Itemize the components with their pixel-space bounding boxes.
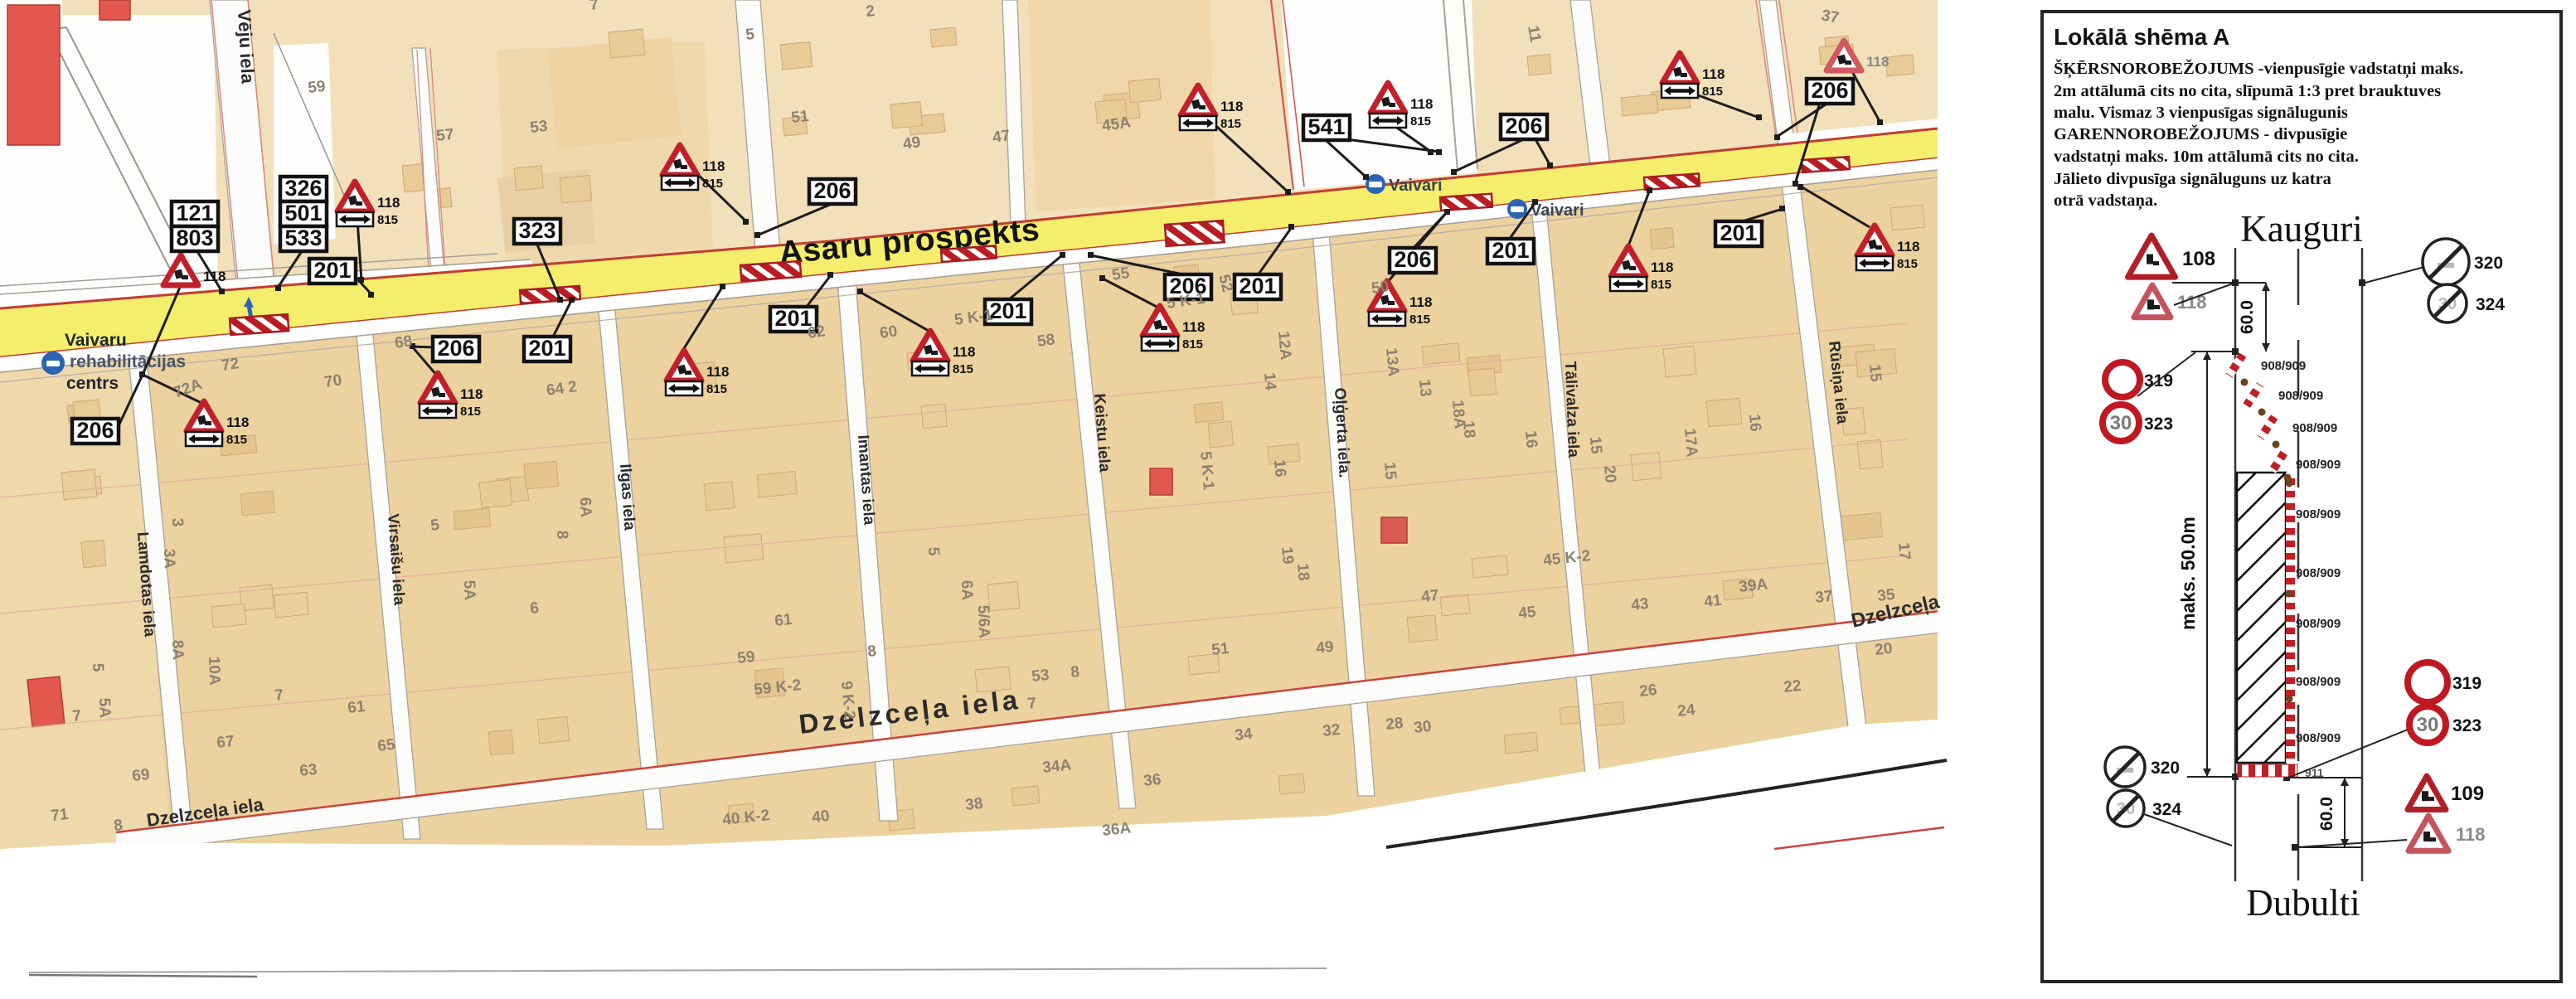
svg-text:5: 5 [924,546,942,556]
svg-text:815: 815 [377,213,398,227]
svg-text:803: 803 [176,226,213,250]
svg-text:35: 35 [1876,586,1896,605]
svg-text:8: 8 [866,643,877,661]
svg-text:17: 17 [1894,542,1914,561]
svg-text:18: 18 [1293,563,1312,582]
svg-text:43: 43 [1630,595,1649,614]
svg-text:36A: 36A [1101,819,1132,840]
svg-text:16: 16 [1745,414,1764,433]
svg-text:118: 118 [1702,66,1725,82]
svg-text:20: 20 [1874,640,1893,659]
svg-text:8: 8 [553,530,570,539]
svg-text:65: 65 [376,736,396,755]
svg-text:6A: 6A [576,497,594,517]
svg-text:5 K-1: 5 K-1 [1196,451,1217,492]
svg-text:37: 37 [1814,588,1833,607]
svg-text:Vaivaru: Vaivaru [65,331,127,350]
svg-text:908/909: 908/909 [2292,421,2337,435]
svg-text:34A: 34A [1041,756,1072,777]
svg-text:201: 201 [313,258,351,283]
svg-text:118: 118 [953,344,975,360]
svg-text:47: 47 [992,127,1011,147]
svg-text:206: 206 [76,418,114,443]
svg-text:533: 533 [284,226,322,250]
svg-text:5A: 5A [95,697,114,718]
svg-text:51: 51 [790,108,810,127]
svg-text:72: 72 [221,355,240,375]
svg-text:118: 118 [203,269,226,284]
svg-text:908/909: 908/909 [2296,675,2341,689]
svg-text:13: 13 [1415,379,1434,398]
svg-text:11: 11 [1524,24,1544,44]
svg-text:Vaivari: Vaivari [1531,201,1584,220]
svg-text:24: 24 [1676,701,1696,720]
svg-text:118: 118 [706,364,729,380]
svg-text:118: 118 [1220,99,1243,114]
svg-text:55: 55 [1111,264,1131,284]
svg-text:206: 206 [1505,114,1542,138]
svg-text:8A: 8A [168,639,187,660]
svg-text:323: 323 [2452,716,2481,735]
svg-text:5/6A: 5/6A [974,604,992,638]
svg-text:Kauguri: Kauguri [2240,208,2362,250]
svg-text:118: 118 [377,195,400,211]
svg-text:18: 18 [1459,420,1478,439]
svg-text:Tālivalza iela: Tālivalza iela [1561,361,1582,458]
svg-text:908/909: 908/909 [2278,389,2323,403]
svg-text:57: 57 [435,126,454,145]
svg-text:13A: 13A [1382,347,1402,378]
svg-text:30: 30 [2417,714,2439,736]
svg-text:63: 63 [298,761,318,780]
svg-text:815: 815 [1182,337,1203,352]
svg-text:69: 69 [131,766,150,785]
svg-text:118: 118 [2456,824,2486,845]
svg-text:201: 201 [989,298,1026,323]
svg-text:118: 118 [1897,239,1919,255]
svg-text:37: 37 [1820,7,1840,27]
svg-text:Vēju iela: Vēju iela [234,9,259,85]
svg-text:501: 501 [284,201,322,226]
svg-text:22: 22 [1783,677,1802,696]
svg-text:118: 118 [702,158,725,174]
svg-text:5A: 5A [460,580,478,600]
svg-text:ŠĶĒRSNOROBEŽOJUMS -vienpusīgie: ŠĶĒRSNOROBEŽOJUMS -vienpusīgie vadstatņi… [2054,58,2463,79]
svg-text:59: 59 [307,78,326,97]
svg-text:38: 38 [964,795,983,814]
svg-text:118: 118 [226,415,249,430]
svg-text:815: 815 [1410,114,1431,129]
svg-text:34: 34 [1234,725,1254,744]
svg-text:15: 15 [1865,364,1885,383]
svg-text:908/909: 908/909 [2296,566,2341,580]
svg-text:108: 108 [2182,248,2215,270]
svg-text:320: 320 [2151,759,2180,778]
svg-text:6A: 6A [958,580,976,600]
svg-text:323: 323 [2144,415,2173,434]
svg-text:49: 49 [902,133,922,153]
svg-text:53: 53 [1031,667,1050,686]
svg-text:41: 41 [1703,592,1723,611]
svg-text:118: 118 [1409,294,1432,310]
svg-text:201: 201 [1492,238,1529,263]
svg-text:2: 2 [865,2,876,21]
svg-text:12A: 12A [1274,331,1294,361]
svg-text:7: 7 [71,707,82,725]
svg-text:908/909: 908/909 [2296,458,2341,472]
svg-text:541: 541 [1307,114,1345,139]
svg-text:324: 324 [2476,295,2505,314]
svg-text:815: 815 [702,177,723,191]
svg-text:815: 815 [706,382,727,396]
svg-text:16: 16 [1521,430,1540,449]
svg-text:3A: 3A [160,548,178,569]
svg-text:26: 26 [1638,681,1657,701]
svg-text:121: 121 [176,201,213,226]
svg-text:61: 61 [347,698,366,717]
svg-text:53: 53 [529,118,548,137]
svg-text:28: 28 [1385,715,1404,734]
svg-text:30: 30 [1413,718,1432,737]
svg-text:815: 815 [1409,313,1430,327]
svg-text:206: 206 [437,336,474,361]
svg-text:rehabilitācijas: rehabilitācijas [70,352,186,371]
svg-text:Dubulti: Dubulti [2246,882,2360,924]
svg-text:67: 67 [216,733,235,752]
svg-text:Vaivari: Vaivari [1389,177,1443,195]
svg-text:815: 815 [1220,117,1241,131]
svg-text:centrs: centrs [66,374,119,393]
svg-text:62: 62 [807,322,827,342]
svg-text:118: 118 [1182,319,1205,335]
svg-text:51: 51 [1210,640,1230,659]
svg-text:8: 8 [113,817,124,835]
svg-text:71: 71 [50,806,70,825]
svg-text:50: 50 [1370,278,1390,298]
svg-text:815: 815 [460,405,481,419]
svg-text:19: 19 [1278,546,1297,565]
svg-text:206: 206 [1394,247,1431,272]
svg-text:908/909: 908/909 [2296,507,2341,521]
svg-text:14: 14 [1260,372,1279,391]
svg-text:118: 118 [1410,96,1433,112]
svg-text:70: 70 [323,371,343,391]
svg-text:118: 118 [460,386,483,402]
svg-text:109: 109 [2451,783,2484,805]
svg-text:201: 201 [528,336,565,361]
svg-text:40: 40 [811,807,830,827]
svg-text:58: 58 [1036,331,1056,351]
svg-text:Lokālā shēma A: Lokālā shēma A [2054,24,2229,50]
svg-text:206: 206 [1811,78,1848,103]
svg-text:8: 8 [1070,663,1080,681]
svg-text:61: 61 [774,611,793,630]
svg-text:3: 3 [168,517,186,526]
svg-text:815: 815 [226,433,247,447]
svg-text:2m attālumā cits no cita, slīp: 2m attālumā cits no cita, slīpumā 1:3 pr… [2054,82,2441,100]
svg-text:815: 815 [1897,257,1918,271]
svg-text:16: 16 [1270,459,1289,478]
svg-text:320: 320 [2474,254,2503,273]
svg-text:206: 206 [813,178,851,203]
svg-text:vadstatņi maks. 10m attālumā c: vadstatņi maks. 10m attālumā cits no cit… [2054,148,2359,167]
svg-text:201: 201 [1239,274,1276,298]
svg-text:36: 36 [1142,771,1162,790]
svg-text:6: 6 [529,599,540,618]
svg-text:815: 815 [1702,85,1723,99]
svg-text:118: 118 [1866,54,1889,70]
svg-text:68: 68 [394,332,414,352]
svg-text:5: 5 [89,662,106,672]
svg-text:20: 20 [1600,465,1619,484]
svg-text:15: 15 [1586,436,1605,455]
svg-text:118: 118 [1651,259,1673,275]
svg-text:10A: 10A [205,656,223,686]
svg-text:324: 324 [2152,800,2181,819]
svg-text:60: 60 [879,322,899,342]
svg-text:908/909: 908/909 [2296,731,2341,745]
svg-text:908/909: 908/909 [2261,359,2306,373]
svg-text:30: 30 [2110,412,2132,434]
svg-text:32: 32 [1322,721,1341,740]
svg-text:60.0: 60.0 [2317,797,2336,831]
svg-text:59: 59 [736,648,755,667]
svg-text:17A: 17A [1681,428,1700,458]
svg-text:60.0: 60.0 [2238,300,2257,334]
svg-text:GARENNOROBEŽOJUMS - divpusīgie: GARENNOROBEŽOJUMS - divpusīgie [2054,124,2347,143]
svg-text:201: 201 [1720,221,1757,245]
svg-text:7: 7 [274,686,284,705]
svg-text:47: 47 [1420,587,1439,606]
svg-text:319: 319 [2452,674,2481,693]
svg-text:Jālieto divpusīga signāluguns: Jālieto divpusīga signāluguns uz katra [2054,170,2331,188]
svg-text:9 K-2: 9 K-2 [837,681,858,720]
svg-text:7: 7 [1026,695,1037,713]
svg-text:7: 7 [589,0,599,14]
svg-text:15: 15 [1380,462,1400,481]
svg-text:908/909: 908/909 [2296,617,2341,631]
svg-text:815: 815 [953,362,973,376]
svg-text:815: 815 [1651,278,1671,292]
svg-text:49: 49 [1315,638,1334,657]
svg-text:326: 326 [284,176,322,201]
svg-text:malu. Vismaz 3 vienpusīgas sig: malu. Vismaz 3 vienpusīgas signālugunis [2054,104,2348,122]
svg-text:39A: 39A [1738,575,1768,596]
svg-text:otrā vadstaņa.: otrā vadstaņa. [2054,192,2157,211]
svg-text:323: 323 [518,218,555,243]
svg-text:maks. 50.0m: maks. 50.0m [2177,516,2199,630]
svg-text:45: 45 [1517,604,1537,623]
